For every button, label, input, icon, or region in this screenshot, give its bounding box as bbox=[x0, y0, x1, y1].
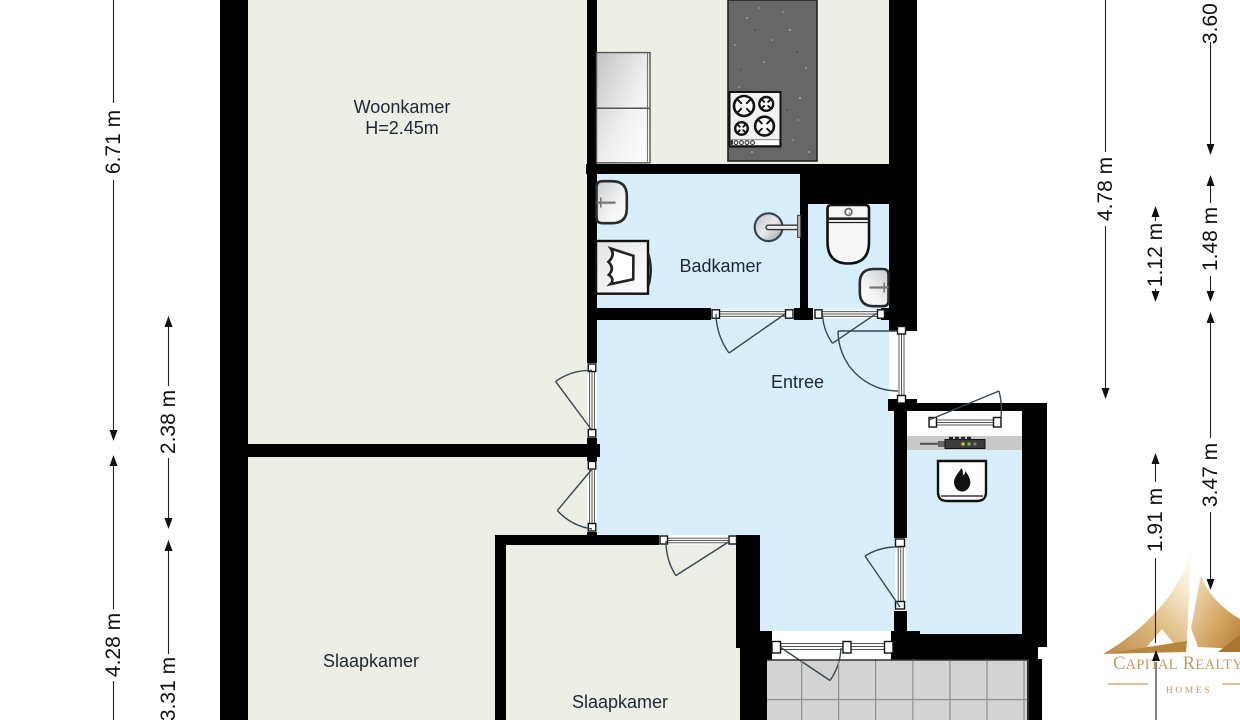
svg-text:1.91 m: 1.91 m bbox=[1144, 488, 1167, 552]
svg-text:6.71 m: 6.71 m bbox=[102, 110, 125, 174]
svg-text:3.31 m: 3.31 m bbox=[157, 657, 180, 720]
svg-text:1.12 m: 1.12 m bbox=[1144, 223, 1167, 287]
svg-text:1.48 m: 1.48 m bbox=[1199, 207, 1222, 271]
svg-text:Slaapkamer: Slaapkamer bbox=[572, 692, 668, 712]
svg-text:3.60 m: 3.60 m bbox=[1199, 0, 1222, 44]
svg-text:3.47 m: 3.47 m bbox=[1199, 443, 1222, 507]
svg-text:2.38 m: 2.38 m bbox=[157, 390, 180, 454]
svg-text:H=2.45m: H=2.45m bbox=[365, 118, 439, 138]
svg-text:Entree: Entree bbox=[771, 372, 824, 392]
svg-text:CAPITAL REALTY: CAPITAL REALTY bbox=[1113, 654, 1240, 674]
svg-text:Badkamer: Badkamer bbox=[679, 256, 761, 276]
svg-text:Woonkamer: Woonkamer bbox=[354, 97, 451, 117]
svg-text:HOMES: HOMES bbox=[1166, 686, 1212, 696]
svg-text:4.28 m: 4.28 m bbox=[102, 613, 125, 677]
svg-text:Slaapkamer: Slaapkamer bbox=[323, 651, 419, 671]
svg-text:4.78 m: 4.78 m bbox=[1094, 157, 1117, 221]
